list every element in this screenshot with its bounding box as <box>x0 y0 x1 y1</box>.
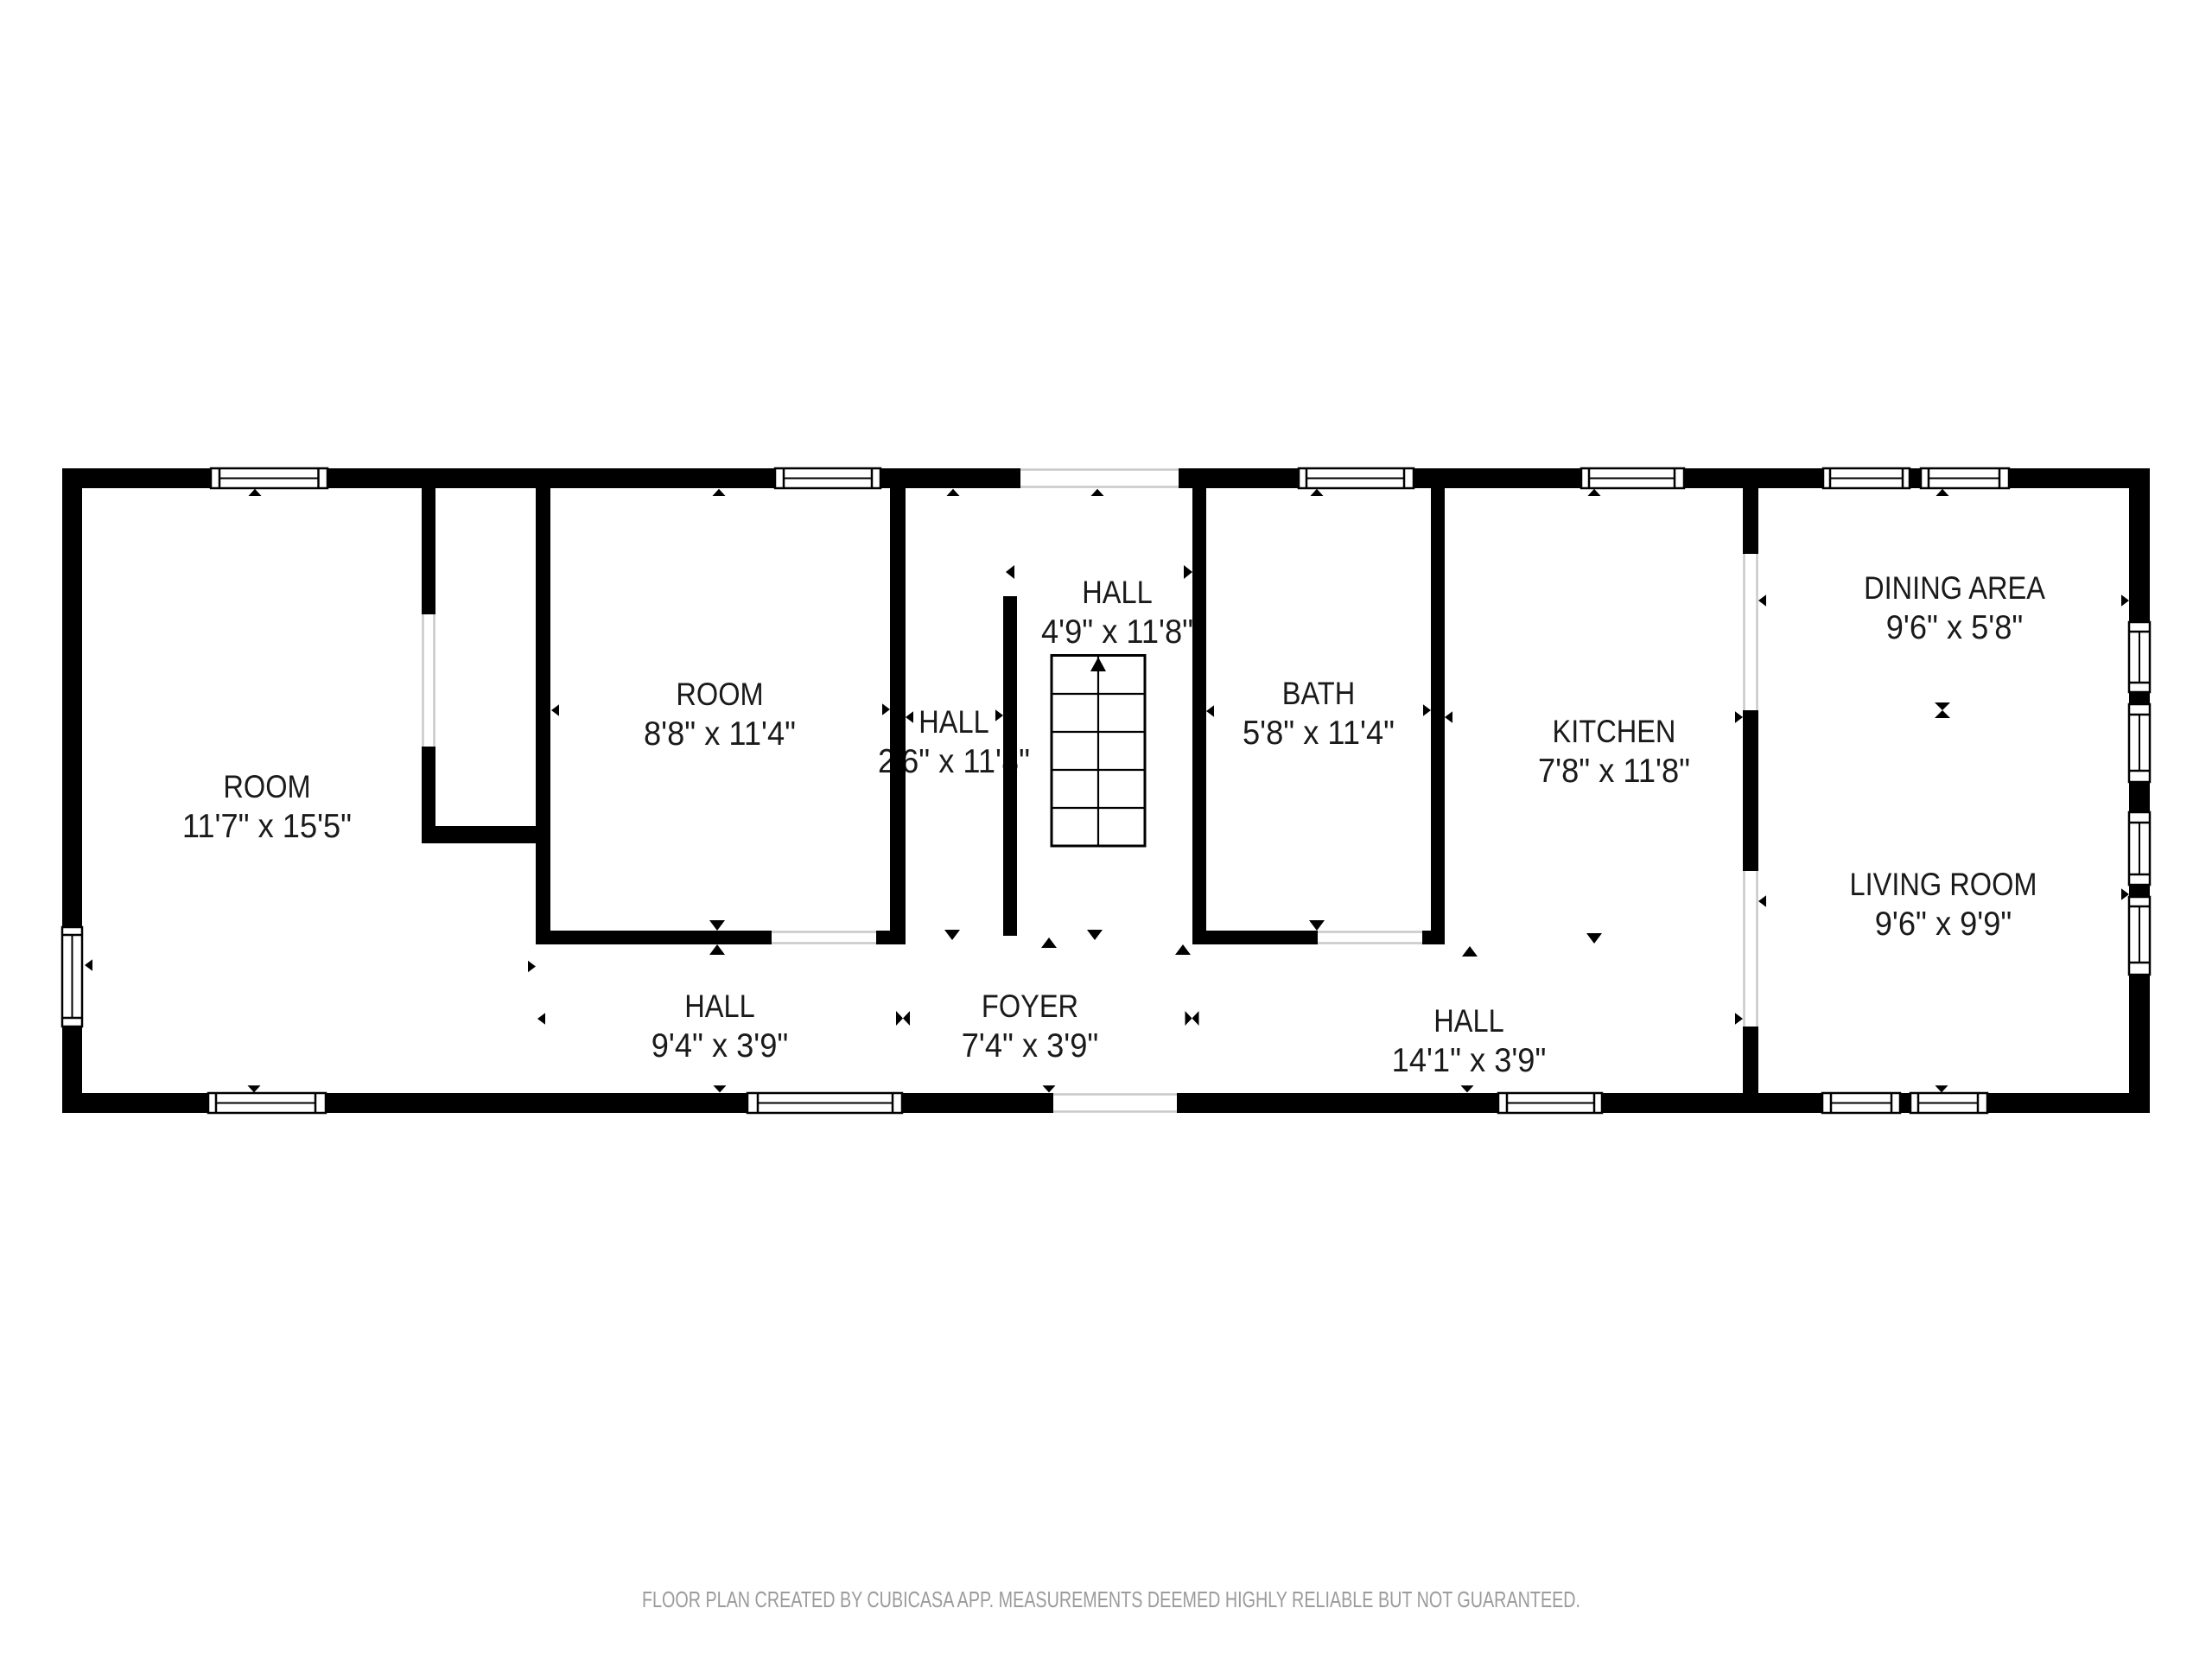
svg-text:4'9" x 11'8": 4'9" x 11'8" <box>1041 613 1193 650</box>
svg-text:BATH: BATH <box>1282 676 1355 711</box>
svg-text:9'6" x 9'9": 9'6" x 9'9" <box>1875 905 2012 942</box>
svg-text:7'8" x 11'8": 7'8" x 11'8" <box>1538 752 1690 789</box>
svg-text:HALL: HALL <box>1433 1003 1503 1039</box>
svg-text:FOYER: FOYER <box>982 988 1078 1024</box>
svg-text:14'1" x 3'9": 14'1" x 3'9" <box>1392 1041 1547 1078</box>
svg-text:9'6" x 5'8": 9'6" x 5'8" <box>1886 608 2024 645</box>
svg-text:FLOOR PLAN CREATED BY CUBICASA: FLOOR PLAN CREATED BY CUBICASA APP. MEAS… <box>642 1586 1580 1611</box>
svg-text:11'7" x 15'5": 11'7" x 15'5" <box>182 807 352 844</box>
svg-text:DINING AREA: DINING AREA <box>1864 570 2046 606</box>
svg-text:ROOM: ROOM <box>223 769 310 804</box>
svg-text:KITCHEN: KITCHEN <box>1553 714 1676 749</box>
svg-text:HALL: HALL <box>918 704 988 740</box>
svg-text:HALL: HALL <box>1082 575 1152 610</box>
svg-text:LIVING ROOM: LIVING ROOM <box>1849 867 2037 902</box>
svg-text:5'8" x 11'4": 5'8" x 11'4" <box>1243 714 1395 751</box>
svg-text:ROOM: ROOM <box>676 677 763 712</box>
svg-text:9'4" x 3'9": 9'4" x 3'9" <box>652 1027 789 1064</box>
svg-text:8'8" x 11'4": 8'8" x 11'4" <box>644 715 796 752</box>
svg-text:7'4" x 3'9": 7'4" x 3'9" <box>962 1027 1099 1064</box>
svg-text:HALL: HALL <box>684 988 754 1024</box>
